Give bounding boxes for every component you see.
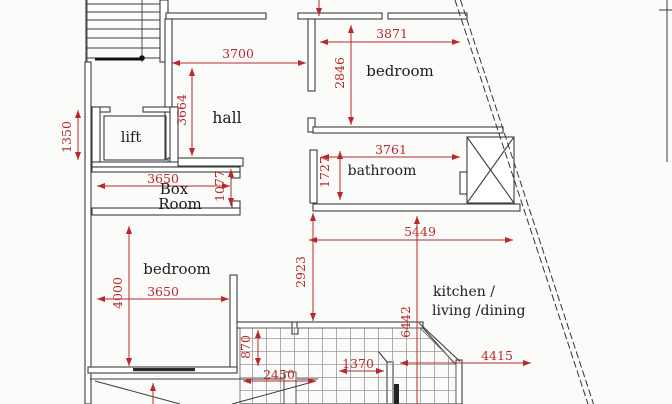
dim-1077: 1077 (212, 170, 227, 202)
dim-1350: 1350 (59, 121, 74, 153)
room-label-bedroom-left: bedroom (143, 260, 211, 278)
wall (308, 19, 315, 91)
wall (313, 204, 520, 211)
window (133, 368, 195, 371)
room-label-bathroom: bathroom (348, 163, 417, 179)
room-label-kitchen-line1: kitchen / (433, 284, 495, 300)
wall (92, 107, 100, 167)
wall (166, 13, 266, 19)
dim-4000: 4000 (110, 277, 125, 309)
wall-section-dark (394, 384, 399, 404)
room-label-kitchen-line2: living /dining (432, 303, 525, 319)
stair-arrow-dot (139, 55, 145, 61)
wall (92, 162, 178, 167)
dim-3700: 3700 (222, 46, 254, 61)
dim-3664: 3664 (174, 94, 189, 126)
wall (313, 127, 503, 133)
dim-3650-bed: 3650 (147, 284, 179, 299)
dim-4415: 4415 (481, 348, 513, 363)
dim-2450: 2450 (263, 367, 295, 382)
room-label-room: Room (158, 195, 202, 213)
dim-2923: 2923 (293, 256, 308, 288)
dim-6442: 6442 (398, 306, 413, 338)
dim-1727: 1727 (317, 156, 332, 188)
room-label-lift: lift (121, 130, 142, 146)
adjacent-drawing-fragment (659, 0, 672, 162)
floor-plan-canvas: 3700 3664 3871 2846 1350 3650 1077 3761 … (0, 0, 672, 404)
wall (237, 322, 292, 328)
dim-2846: 2846 (332, 57, 347, 89)
wall (85, 62, 91, 404)
shaft-box (467, 137, 514, 203)
wall (168, 158, 243, 166)
wall (388, 13, 467, 19)
wall (460, 172, 467, 194)
wall (232, 172, 240, 178)
dim-3761: 3761 (375, 142, 407, 157)
room-label-bedroom-top: bedroom (366, 62, 434, 80)
wall (456, 360, 462, 404)
wall (232, 201, 240, 208)
dim-870: 870 (238, 335, 253, 359)
wall (298, 13, 382, 19)
wall (230, 275, 237, 372)
wall (310, 150, 317, 203)
room-label-hall: hall (212, 109, 241, 127)
staircase (87, 0, 160, 62)
dim-5449: 5449 (404, 224, 436, 239)
dim-3871: 3871 (376, 26, 408, 41)
floor-plan-drawing: 3700 3664 3871 2846 1350 3650 1077 3761 … (0, 0, 672, 404)
dim-1370: 1370 (342, 356, 374, 371)
